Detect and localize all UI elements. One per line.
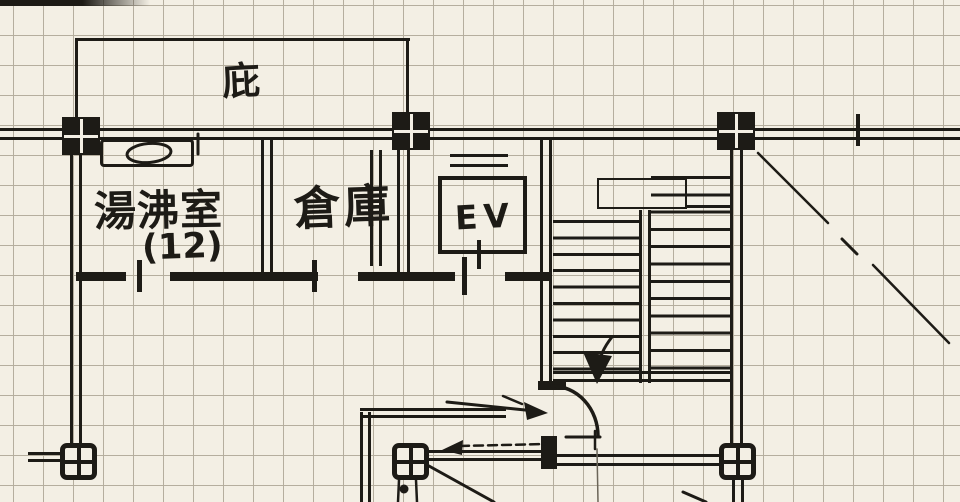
ink-dot [400, 485, 409, 494]
scan-smudge [0, 0, 150, 6]
wall-stair-foot-stub [538, 381, 566, 390]
wall-storage-left [261, 138, 273, 278]
wall-joint-tick [856, 114, 860, 146]
wall-corridor-bottom [557, 454, 733, 466]
label-kitchenette-number: (12) [141, 229, 223, 267]
door-jamb-tick-elevator [462, 257, 467, 295]
wall-stair-left [540, 140, 552, 386]
diagonal-stroke-bottom-right [683, 492, 706, 502]
wall-exterior-left [70, 150, 82, 448]
door-swing-arc [552, 386, 598, 436]
column-stub-line-2 [416, 480, 417, 502]
wall-corridor-counter [428, 450, 546, 461]
door-jamb-tick-kitchenette [137, 260, 142, 292]
dashed-left-arrow-icon [460, 444, 546, 446]
wall-below-column-right [732, 480, 744, 502]
canopy-wall-top [75, 38, 410, 41]
wall-stair-bottom [553, 371, 733, 382]
column-top-right [717, 112, 755, 150]
column-stub-line-1 [398, 480, 399, 502]
sink-counter [100, 139, 194, 167]
label-elevator: EV [454, 198, 516, 234]
wall-stair-center [639, 210, 651, 383]
door-jamb-block [541, 436, 557, 469]
door-jamb-tick-storage [312, 260, 317, 292]
column-top-middle [392, 112, 430, 150]
label-canopy: 庇 [221, 61, 261, 101]
canopy-wall-right [406, 38, 409, 115]
wall-stub-bottom-left [28, 452, 62, 462]
diagonal-stroke-3 [873, 265, 949, 343]
stair-landing-line [687, 205, 731, 208]
wall-room-bottom-seg3 [358, 272, 455, 281]
floor-plan-canvas: 庇 湯沸室 (12) 倉庫 EV [0, 0, 960, 502]
wall-elevator-left [397, 148, 410, 274]
right-arrow-head [524, 402, 548, 420]
canopy-wall-left [75, 38, 78, 122]
right-arrow-stroke2 [503, 396, 522, 404]
wall-stair-right [730, 150, 743, 444]
column-bottom-right [719, 443, 756, 480]
wall-room-bottom-seg1 [76, 272, 126, 281]
column-top-left [62, 117, 100, 155]
elevator-door [450, 154, 508, 167]
wall-room-bottom-seg2 [170, 272, 318, 281]
column-bottom-middle [392, 443, 429, 480]
stair-landing-outline [597, 178, 687, 209]
label-storage: 倉庫 [293, 182, 395, 231]
stair-treads-left-run [553, 220, 639, 372]
column-bottom-left [60, 443, 97, 480]
diagonal-stroke-1 [758, 153, 828, 223]
diagonal-stroke-column [429, 466, 494, 502]
diagonal-stroke-2 [842, 239, 857, 254]
wall-corridor-left [360, 412, 371, 502]
wall-corridor-top [360, 408, 506, 418]
